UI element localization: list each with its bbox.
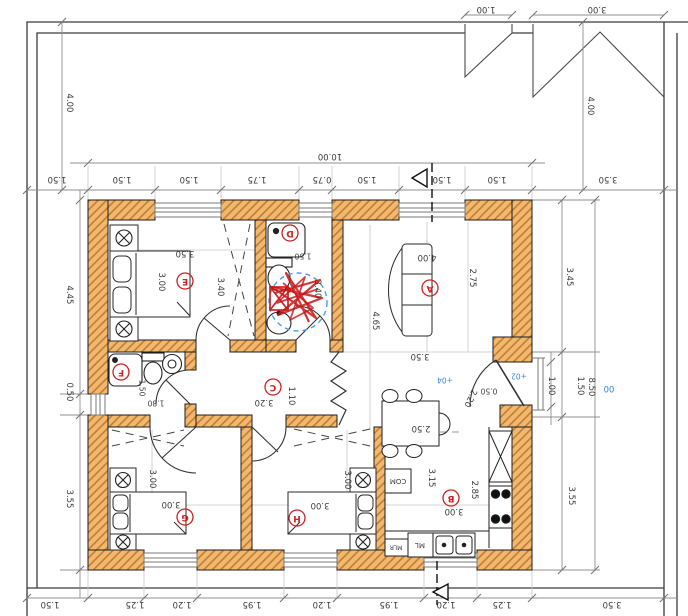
dim-label: 1.20 [313, 599, 332, 609]
dim-label: 1.50 [358, 174, 377, 184]
dim-label: 3.00 [162, 499, 181, 509]
dim-label: 3.55 [566, 487, 576, 506]
dim-label: 1.25 [493, 599, 512, 609]
dim-label: 1.95 [380, 599, 399, 609]
dim-label: 1.50 [48, 174, 67, 184]
dim-label: 2.85 [469, 481, 479, 500]
dim-label: 2.50 [412, 423, 431, 433]
dim-label: 8.50 [586, 378, 596, 397]
dim-label: 10.00 [318, 151, 342, 161]
dim-label: 3.15 [426, 469, 436, 488]
dim-label: 4.00 [418, 252, 437, 262]
room-letter: B [447, 493, 454, 503]
dim-label: +04 [437, 376, 453, 385]
floor-plan-drawing: 1.003.004.004.0010.001.501.501.501.750.7… [0, 0, 688, 616]
dim-label: 3.50 [599, 174, 618, 184]
room-letter: D [286, 228, 293, 238]
dim-label: 3.40 [312, 280, 322, 299]
equipment-label: ML [415, 541, 425, 549]
equipment-label: COM [390, 477, 406, 485]
dim-label: 3.50 [411, 351, 430, 361]
floor-plan-canvas: 1.003.004.004.0010.001.501.501.501.750.7… [0, 0, 688, 616]
dim-label: 0.50 [480, 387, 497, 396]
dim-label: 1.50 [294, 252, 311, 261]
wall-break-zigzag [331, 352, 346, 425]
dim-label: 1.10 [286, 387, 296, 406]
roof-gable-outlines [465, 24, 664, 97]
dim-label: 1.25 [126, 599, 145, 609]
dim-label: 4.00 [64, 94, 74, 113]
dim-label: 00 [604, 383, 615, 393]
room-letter: C [269, 382, 276, 392]
dim-label: 3.00 [445, 506, 464, 516]
room-letter: G [181, 512, 188, 522]
dim-label: 1.80 [147, 399, 164, 408]
dim-label: 3.40 [215, 278, 225, 297]
room-letter: F [118, 367, 124, 377]
dim-label: 3.00 [147, 470, 157, 489]
dim-label: 3.20 [255, 397, 274, 407]
dim-label: 1.50 [41, 599, 60, 609]
dim-label: 0.50 [64, 383, 74, 402]
room-marker-B: B [443, 490, 459, 506]
room-letter: H [293, 513, 301, 523]
room-marker-C: C [265, 379, 281, 395]
dim-label: 3.00 [311, 500, 330, 510]
dim-label: +02 [511, 372, 527, 381]
dim-label: 1.50 [433, 174, 452, 184]
dim-label: 1.50 [575, 377, 585, 396]
dim-label: 3.00 [588, 4, 607, 14]
dim-label: 1.50 [488, 174, 507, 184]
dim-label: 1.00 [546, 377, 556, 396]
dim-label: 1.50 [113, 174, 132, 184]
bed-room-e [110, 225, 190, 341]
dim-label: 2.20 [461, 387, 478, 408]
kitchen-fixtures [382, 390, 512, 558]
dim-label: 1.00 [477, 4, 496, 14]
dim-label: 4.65 [370, 312, 380, 331]
dim-label: 4.45 [64, 286, 74, 305]
dim-label: 1.20 [437, 599, 456, 609]
dim-label: 3.45 [564, 268, 574, 287]
dim-label: 3.50 [603, 599, 622, 609]
dim-label: 1.95 [243, 599, 262, 609]
equipment-label: MLR [390, 544, 403, 551]
dim-label: 4.00 [585, 97, 595, 116]
dim-label: 3.00 [156, 273, 166, 292]
dim-label: 1.75 [248, 174, 267, 184]
room-letter: E [182, 276, 188, 286]
dim-label: 1.50 [138, 380, 147, 397]
dim-label: 3.55 [64, 490, 74, 509]
dim-label: 1.20 [173, 599, 192, 609]
room-letter: A [426, 283, 433, 293]
dim-label: 0.75 [313, 174, 332, 184]
dim-label: 3.50 [176, 248, 195, 258]
dim-label: 2.75 [467, 269, 477, 288]
dim-label: 1.50 [180, 174, 199, 184]
dim-label: 3.00 [342, 471, 352, 490]
